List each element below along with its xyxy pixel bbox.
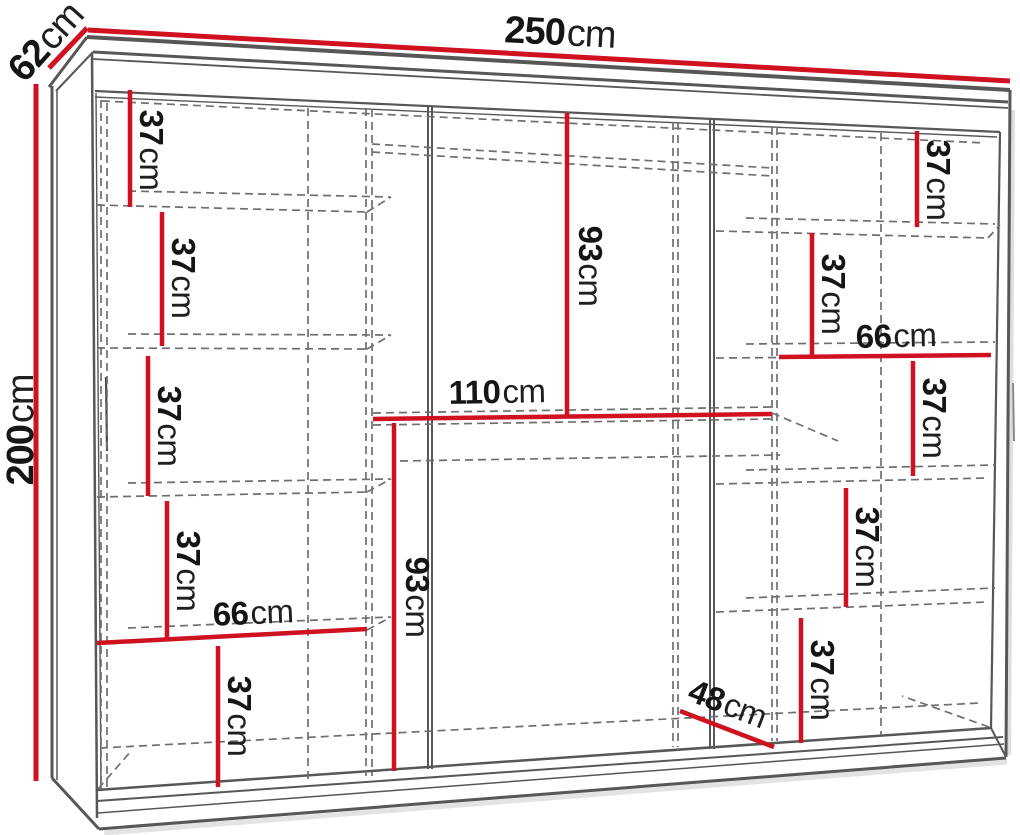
shelf-back-edge (128, 334, 390, 335)
label-right-gap-1: 37cm (921, 140, 958, 221)
tspan-segment: 37 (134, 110, 171, 146)
tspan-segment: 200 (0, 425, 42, 485)
door-handle-right (1013, 383, 1014, 441)
tspan-segment: cm (0, 374, 42, 423)
label-right-gap-2: 37cm (816, 254, 853, 335)
shelf-side-diagonal (772, 413, 838, 441)
tspan-segment: cm (250, 592, 295, 631)
label-right-width: 66cm (855, 315, 937, 354)
tspan-segment: cm (893, 315, 937, 353)
tspan-segment: 250 (503, 9, 566, 54)
label-left-gap-5: 37cm (222, 676, 259, 757)
tspan-segment: 37 (805, 640, 842, 676)
tspan-segment: 66 (212, 594, 249, 633)
label-mid-lower-height: 93cm (400, 557, 437, 638)
right-front-stile (991, 132, 1000, 728)
label-right-gap-4: 37cm (850, 507, 887, 588)
label-mid-upper-height: 93cm (573, 226, 610, 307)
shelf-front-edge (716, 602, 988, 612)
tspan-segment: cm (917, 415, 954, 458)
shelf-back-edge (746, 588, 995, 598)
tspan-segment: cm (921, 177, 958, 220)
shelf-front-edge (97, 348, 367, 349)
shelf-side-diagonal (367, 479, 391, 492)
label-mid-width: 110cm (448, 372, 545, 411)
tspan-segment: 37 (166, 238, 203, 274)
tspan-segment: cm (805, 677, 842, 720)
bottom-right-corner (991, 728, 1006, 757)
tspan-segment: cm (152, 423, 189, 466)
label-height-left: 200cm (0, 374, 42, 485)
tspan-segment: 37 (850, 507, 887, 543)
tspan-segment: cm (850, 544, 887, 587)
shelf-back-edge (746, 465, 995, 470)
tspan-segment: cm (566, 12, 617, 56)
tspan-segment: cm (171, 568, 208, 611)
label-left-gap-2: 37cm (166, 238, 203, 319)
tspan-segment: 37 (917, 378, 954, 414)
bottom-left-slant (52, 778, 99, 829)
shelf-front-edge (716, 231, 988, 238)
label-right-gap-3: 37cm (917, 378, 954, 459)
diagram-canvas: 250cm 62cm 200cm 37cm 37cm 37cm 37cm 66c… (0, 0, 1020, 835)
shelf-front-edge (97, 205, 367, 212)
interior-top-edge-2 (95, 97, 997, 137)
shelf-back-edge (128, 479, 390, 483)
floor-shadow (104, 762, 1007, 833)
tspan-segment: 93 (573, 226, 610, 262)
tspan-segment: cm (400, 594, 437, 637)
label-left-gap-3: 37cm (152, 386, 189, 467)
label-right-gap-5: 37cm (805, 640, 842, 721)
dim-line-right-width (779, 355, 991, 357)
label-left-gap-1: 37cm (134, 110, 171, 191)
tspan-segment: cm (222, 713, 259, 756)
top-front-edge (93, 52, 1008, 102)
ceiling-back-edge (102, 101, 985, 143)
tspan-segment: 37 (171, 531, 208, 567)
tspan-segment: 37 (222, 676, 259, 712)
floor-corner-diagonal-left (98, 750, 132, 789)
label-width-top: 250cm (503, 9, 616, 57)
shelf-front-edge (97, 492, 367, 497)
tspan-segment: 93 (400, 557, 437, 593)
tspan-segment: cm (502, 372, 546, 410)
tspan-segment: cm (166, 275, 203, 318)
shelf-front-edge (716, 478, 988, 484)
tspan-segment: 37 (921, 140, 958, 176)
floor-corner-diagonal-right (902, 696, 989, 727)
tspan-segment: cm (816, 291, 853, 334)
shelf-side-diagonal (367, 617, 391, 630)
interior-top-edge (95, 91, 1000, 132)
tspan-segment: cm (573, 263, 610, 306)
shelf-side-diagonal (367, 197, 391, 212)
shelf-back-edge (128, 191, 390, 197)
cabinet-outline (49, 37, 1014, 829)
tspan-segment: 110 (448, 372, 500, 410)
label-left-width: 66cm (212, 592, 294, 632)
wardrobe-dimension-diagram: 250cm 62cm 200cm 37cm 37cm 37cm 37cm 66c… (0, 0, 1020, 835)
tspan-segment: 37 (816, 254, 853, 290)
tspan-segment: cm (134, 147, 171, 190)
tspan-segment: 37 (152, 386, 189, 422)
tspan-segment: 66 (855, 317, 892, 355)
label-bottom-niche: 48cm (684, 671, 773, 734)
label-depth: 62cm (0, 0, 92, 90)
shelf-side-diagonal (367, 335, 391, 349)
shelf-back-edge (400, 455, 780, 461)
label-left-gap-4: 37cm (171, 531, 208, 612)
door-handle-left (106, 377, 107, 451)
